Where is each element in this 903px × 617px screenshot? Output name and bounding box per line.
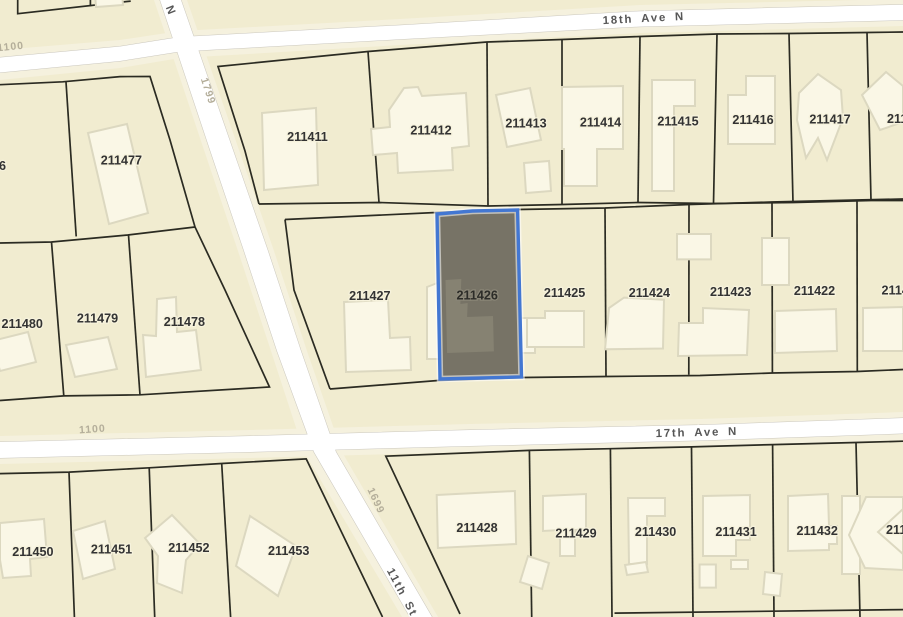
svg-text:211478: 211478: [164, 315, 205, 329]
svg-text:211433: 211433: [886, 523, 903, 537]
svg-text:211451: 211451: [91, 543, 132, 557]
svg-text:211415: 211415: [657, 115, 698, 129]
svg-text:211424: 211424: [629, 286, 670, 300]
svg-text:1100: 1100: [79, 423, 107, 437]
svg-text:211423: 211423: [710, 285, 751, 299]
svg-text:211417: 211417: [809, 113, 850, 127]
svg-text:211416: 211416: [732, 113, 773, 127]
svg-text:211428: 211428: [456, 521, 497, 535]
svg-text:211426: 211426: [457, 289, 498, 303]
svg-text:211452: 211452: [168, 541, 209, 555]
svg-text:211477: 211477: [101, 154, 142, 168]
svg-text:211421: 211421: [882, 284, 903, 298]
svg-text:211479: 211479: [77, 312, 118, 326]
svg-text:211453: 211453: [268, 544, 309, 558]
svg-text:211480: 211480: [2, 317, 43, 331]
svg-text:211422: 211422: [794, 284, 835, 298]
svg-text:211430: 211430: [635, 525, 676, 539]
svg-text:211414: 211414: [580, 116, 621, 130]
svg-text:211418: 211418: [887, 112, 903, 126]
svg-text:211429: 211429: [555, 527, 596, 541]
svg-text:211431: 211431: [715, 525, 756, 539]
svg-text:211476: 211476: [0, 159, 6, 173]
svg-text:17th Ave N: 17th Ave N: [656, 426, 739, 440]
svg-text:211413: 211413: [505, 117, 546, 131]
svg-text:211425: 211425: [544, 286, 585, 300]
svg-text:211411: 211411: [287, 130, 328, 144]
svg-text:211432: 211432: [797, 524, 838, 538]
svg-text:211412: 211412: [410, 124, 451, 138]
svg-text:211450: 211450: [12, 545, 53, 559]
svg-text:211427: 211427: [349, 289, 390, 303]
